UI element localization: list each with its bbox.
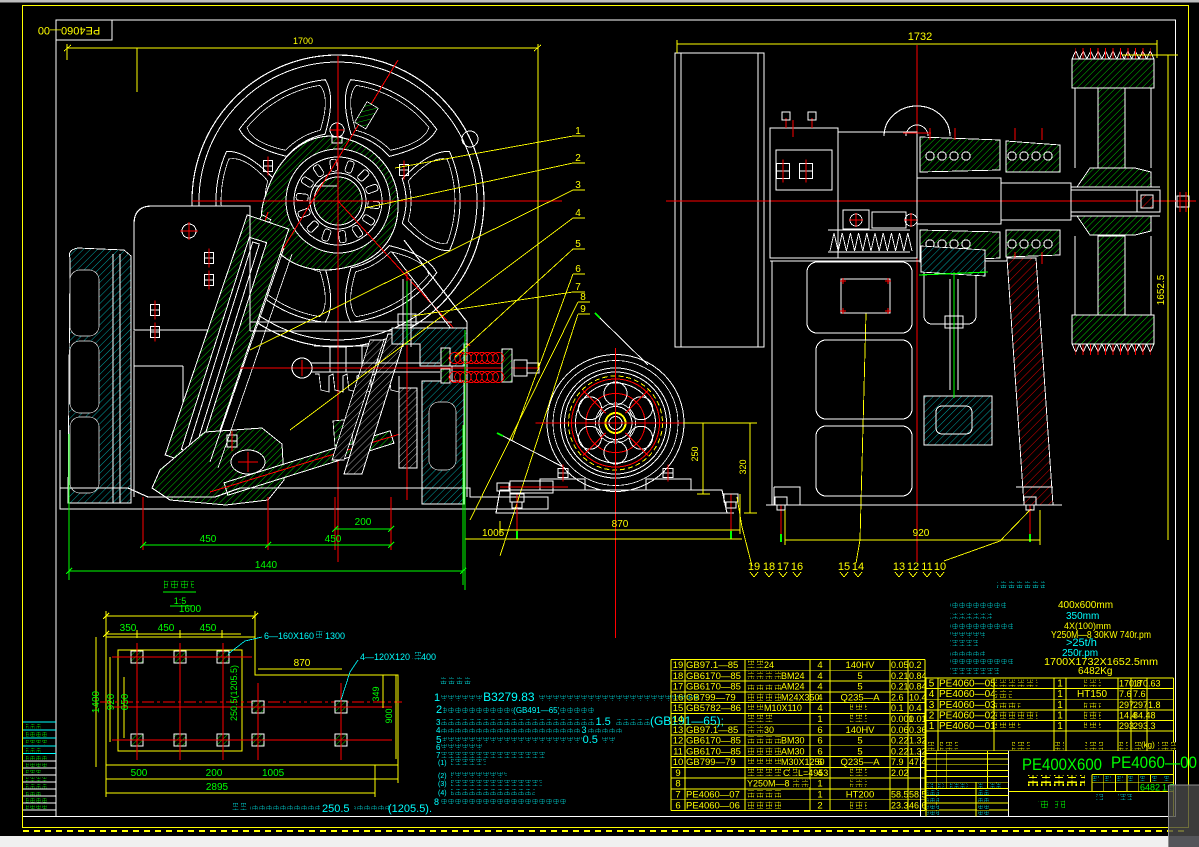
svg-text:PE4060—03: PE4060—03 xyxy=(939,700,996,711)
svg-text:58.5: 58.5 xyxy=(891,790,909,800)
svg-text:6: 6 xyxy=(817,725,822,736)
svg-text:PE4060—01: PE4060—01 xyxy=(939,721,996,732)
svg-text:BM24: BM24 xyxy=(781,671,805,681)
svg-text:11: 11 xyxy=(673,746,683,757)
svg-text:1: 1 xyxy=(575,126,581,137)
svg-text:2971.8: 2971.8 xyxy=(1133,700,1161,710)
svg-text:6: 6 xyxy=(575,264,581,275)
svg-text:4—120X120: 4—120X120 xyxy=(360,652,410,662)
svg-text:297: 297 xyxy=(1119,700,1134,710)
svg-text:140HV: 140HV xyxy=(845,660,875,671)
svg-text:6—160X160: 6—160X160 xyxy=(264,631,314,641)
svg-text:870: 870 xyxy=(612,519,629,530)
svg-text:450: 450 xyxy=(200,534,217,545)
svg-text:(4): (4) xyxy=(438,790,447,797)
svg-text:9: 9 xyxy=(675,768,680,779)
svg-text:5: 5 xyxy=(575,239,581,250)
svg-text:M10X110: M10X110 xyxy=(764,703,802,713)
svg-text:0.05: 0.05 xyxy=(891,660,909,670)
svg-text:7.6: 7.6 xyxy=(1119,689,1132,699)
svg-text:900: 900 xyxy=(384,708,394,723)
svg-text:1: 1 xyxy=(817,714,822,725)
svg-text:2.6: 2.6 xyxy=(891,692,904,702)
svg-text:350: 350 xyxy=(120,623,137,634)
svg-text:18: 18 xyxy=(763,561,775,573)
svg-text:Q235—A: Q235—A xyxy=(840,757,880,768)
svg-text:18: 18 xyxy=(673,671,684,682)
svg-text:0.22: 0.22 xyxy=(891,736,909,746)
svg-text:4: 4 xyxy=(575,208,581,219)
svg-text:C: C xyxy=(783,768,790,778)
svg-text:PE4060—04: PE4060—04 xyxy=(939,689,996,700)
svg-text:HT150: HT150 xyxy=(1077,689,1107,700)
svg-text:400x600mm: 400x600mm xyxy=(1058,600,1113,611)
svg-text:GB6170—85: GB6170—85 xyxy=(686,682,741,693)
svg-text:1: 1 xyxy=(817,790,822,801)
svg-text:1400: 1400 xyxy=(91,690,102,713)
svg-text:6: 6 xyxy=(817,746,822,757)
svg-text:0.01: 0.01 xyxy=(909,714,927,724)
svg-text:8: 8 xyxy=(580,292,586,303)
svg-text:6: 6 xyxy=(817,736,822,747)
svg-text:2.02: 2.02 xyxy=(891,768,909,778)
svg-text:7.9: 7.9 xyxy=(891,757,904,767)
svg-text:Q235—A: Q235—A xyxy=(840,692,880,703)
svg-text:1: 1 xyxy=(929,721,935,732)
svg-text:24: 24 xyxy=(764,660,774,670)
svg-text:1005: 1005 xyxy=(482,528,505,539)
svg-text:293.3: 293.3 xyxy=(1133,721,1156,731)
svg-text:GB6170—85: GB6170—85 xyxy=(686,746,741,757)
svg-text:450: 450 xyxy=(158,623,175,634)
svg-text:0.22: 0.22 xyxy=(891,746,909,756)
svg-text:7: 7 xyxy=(675,790,680,801)
svg-text:1.5: 1.5 xyxy=(595,716,610,728)
svg-text:200: 200 xyxy=(206,768,223,779)
svg-text:PE4060—00: PE4060—00 xyxy=(1111,754,1197,772)
svg-text:1700: 1700 xyxy=(293,36,313,46)
svg-text:4: 4 xyxy=(817,692,822,703)
svg-text:1: 1 xyxy=(1057,710,1063,721)
svg-text:250.5: 250.5 xyxy=(322,803,350,815)
svg-text:3: 3 xyxy=(929,700,935,711)
svg-text:23.3: 23.3 xyxy=(891,800,909,810)
svg-text:HT200: HT200 xyxy=(846,790,875,801)
svg-text:1: 1 xyxy=(434,692,440,704)
svg-text:5: 5 xyxy=(857,671,862,682)
svg-text:Y250M—8: Y250M—8 xyxy=(747,779,790,789)
svg-text:6482: 6482 xyxy=(1140,783,1160,793)
svg-text:GB5782—86: GB5782—86 xyxy=(686,703,741,714)
svg-text:1732: 1732 xyxy=(908,31,932,43)
svg-text:14: 14 xyxy=(852,561,864,573)
svg-text:(1205.5).: (1205.5). xyxy=(388,803,432,815)
svg-text:12: 12 xyxy=(673,736,684,747)
svg-text:GB6170—85: GB6170—85 xyxy=(686,736,741,747)
svg-text:(3): (3) xyxy=(438,781,447,788)
svg-text:2: 2 xyxy=(817,800,822,811)
svg-text:4: 4 xyxy=(817,682,822,693)
svg-text:15: 15 xyxy=(838,561,850,573)
svg-text:0.84: 0.84 xyxy=(909,682,927,692)
svg-text:8: 8 xyxy=(434,797,439,807)
svg-text:PE400X600: PE400X600 xyxy=(1022,756,1102,774)
svg-text:4: 4 xyxy=(817,768,822,779)
svg-text:7.6: 7.6 xyxy=(1133,689,1146,699)
svg-text:14: 14 xyxy=(673,714,684,725)
svg-text:0.5: 0.5 xyxy=(583,734,598,746)
svg-text:AM30: AM30 xyxy=(781,746,805,756)
svg-text:5: 5 xyxy=(857,736,862,747)
svg-text:(GB491—65): (GB491—65) xyxy=(513,706,560,715)
svg-text:9: 9 xyxy=(580,304,586,315)
svg-text:1: 1 xyxy=(1057,721,1063,732)
svg-text:PE4060—00: PE4060—00 xyxy=(38,24,100,36)
svg-text:19: 19 xyxy=(673,660,684,671)
svg-text:AM24: AM24 xyxy=(781,682,805,692)
svg-text:2895: 2895 xyxy=(206,782,229,793)
svg-text:1300: 1300 xyxy=(325,631,345,641)
svg-text:1: 1 xyxy=(817,779,822,790)
svg-text:6: 6 xyxy=(817,757,822,768)
svg-text:17: 17 xyxy=(777,561,789,573)
svg-text:M24X350: M24X350 xyxy=(781,692,820,702)
svg-text:920: 920 xyxy=(106,693,117,710)
svg-text:1: 1 xyxy=(1057,689,1063,700)
svg-text:250: 250 xyxy=(690,446,700,461)
svg-text:2: 2 xyxy=(929,710,935,721)
svg-text:4: 4 xyxy=(817,671,822,682)
svg-text:0.36: 0.36 xyxy=(909,725,927,735)
svg-text:6482Kg: 6482Kg xyxy=(1078,666,1112,677)
svg-text:L=4953: L=4953 xyxy=(798,768,828,778)
svg-text:PE4060—05: PE4060—05 xyxy=(939,679,996,690)
svg-text:1005: 1005 xyxy=(262,768,285,779)
svg-text:1.32: 1.32 xyxy=(909,736,927,746)
svg-text:11: 11 xyxy=(921,561,932,573)
svg-text:5: 5 xyxy=(857,746,862,757)
svg-text:GB799—79: GB799—79 xyxy=(686,757,736,768)
svg-text:3: 3 xyxy=(575,180,581,191)
svg-text:170.63: 170.63 xyxy=(1133,679,1161,689)
svg-text:0.2: 0.2 xyxy=(909,660,922,670)
svg-text:4: 4 xyxy=(817,660,822,671)
svg-text:4: 4 xyxy=(929,689,935,700)
svg-text:84.48: 84.48 xyxy=(1133,710,1156,720)
svg-text:10: 10 xyxy=(673,757,684,768)
svg-text:1.32: 1.32 xyxy=(909,746,927,756)
svg-text:250.5(1205.5): 250.5(1205.5) xyxy=(229,665,239,721)
svg-text:293: 293 xyxy=(1119,721,1134,731)
svg-text:(2): (2) xyxy=(438,773,447,780)
svg-text:400: 400 xyxy=(421,652,436,662)
svg-text:PE4060—07: PE4060—07 xyxy=(686,790,740,801)
svg-text:0.4: 0.4 xyxy=(909,703,922,713)
svg-text:(1): (1) xyxy=(438,760,447,767)
svg-text:47.4: 47.4 xyxy=(909,757,927,767)
svg-text:19: 19 xyxy=(748,561,760,573)
svg-text:10: 10 xyxy=(934,561,946,573)
svg-text:(kg): (kg) xyxy=(1141,741,1155,750)
svg-text:PE4060—06: PE4060—06 xyxy=(686,800,740,811)
svg-text:200: 200 xyxy=(355,517,372,528)
svg-text:450: 450 xyxy=(200,623,217,634)
svg-text:0.21: 0.21 xyxy=(891,682,909,692)
svg-text:450: 450 xyxy=(325,534,342,545)
svg-text:BM30: BM30 xyxy=(781,736,805,746)
svg-text:1600: 1600 xyxy=(179,604,202,615)
svg-text:0.84: 0.84 xyxy=(909,671,927,681)
svg-text:0.21: 0.21 xyxy=(891,671,909,681)
svg-text:GB97.1—85: GB97.1—85 xyxy=(686,725,738,736)
svg-text:GB97.1—85: GB97.1—85 xyxy=(686,660,738,671)
svg-text:140HV: 140HV xyxy=(845,725,875,736)
svg-text:4: 4 xyxy=(436,726,441,735)
svg-text:1: 1 xyxy=(1057,700,1063,711)
svg-text:4: 4 xyxy=(817,703,822,714)
svg-text:B3279.83: B3279.83 xyxy=(483,690,535,704)
svg-text:15: 15 xyxy=(673,703,684,714)
svg-text:12: 12 xyxy=(907,561,919,573)
svg-text:30: 30 xyxy=(764,725,774,735)
svg-text:920: 920 xyxy=(913,528,930,539)
svg-text:PE4060—02: PE4060—02 xyxy=(939,710,996,721)
svg-text:13: 13 xyxy=(893,561,905,573)
svg-text:870: 870 xyxy=(294,658,311,669)
svg-text:650: 650 xyxy=(120,693,131,710)
svg-text:1440: 1440 xyxy=(255,560,278,571)
svg-text:GB799—79: GB799—79 xyxy=(686,692,736,703)
svg-text:1: 1 xyxy=(1057,679,1063,690)
svg-text:10.4: 10.4 xyxy=(909,692,927,702)
svg-text:500: 500 xyxy=(131,768,148,779)
svg-text:2: 2 xyxy=(436,704,442,716)
svg-text:320: 320 xyxy=(738,459,748,474)
svg-text:8: 8 xyxy=(675,779,680,790)
svg-text:5: 5 xyxy=(857,682,862,693)
svg-text:58.5: 58.5 xyxy=(909,790,927,800)
svg-text:1652.5: 1652.5 xyxy=(1156,274,1167,305)
svg-text:0.06: 0.06 xyxy=(891,725,909,735)
svg-text:0.1: 0.1 xyxy=(891,703,904,713)
svg-text:13: 13 xyxy=(673,725,684,736)
svg-text:5: 5 xyxy=(929,679,935,690)
svg-text:GB6170—85: GB6170—85 xyxy=(686,671,741,682)
svg-text:16: 16 xyxy=(673,692,684,703)
svg-text:16: 16 xyxy=(791,561,803,573)
svg-text:349: 349 xyxy=(371,686,381,701)
svg-text:17: 17 xyxy=(673,682,684,693)
svg-text:6: 6 xyxy=(675,800,680,811)
svg-text:2: 2 xyxy=(575,153,581,164)
svg-text:7: 7 xyxy=(436,751,441,760)
svg-text:46.6: 46.6 xyxy=(909,800,927,810)
